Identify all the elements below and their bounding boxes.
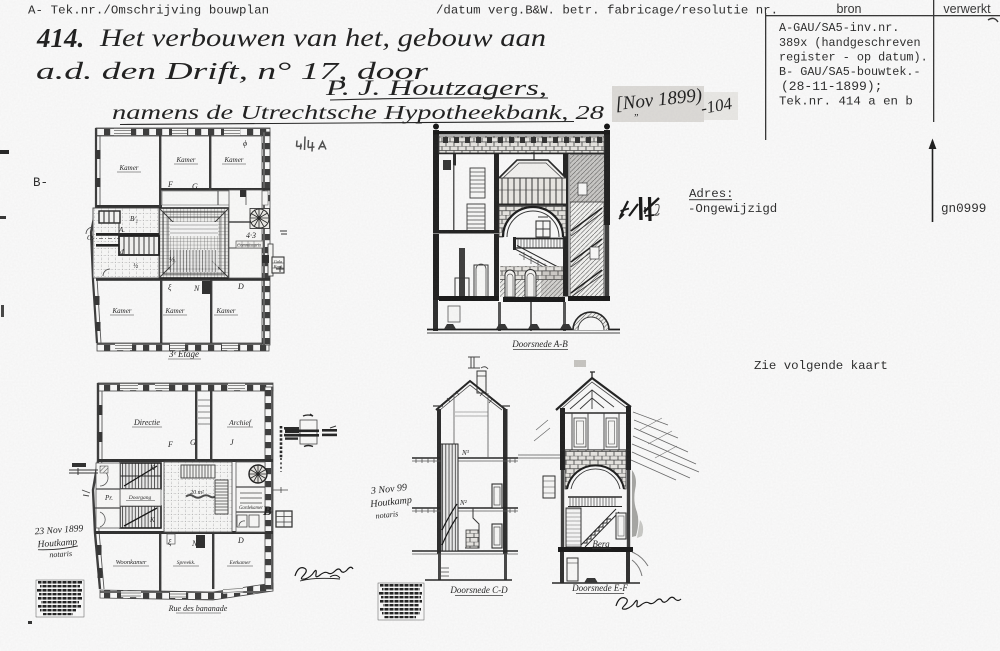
svg-text:notaris: notaris — [49, 549, 72, 560]
